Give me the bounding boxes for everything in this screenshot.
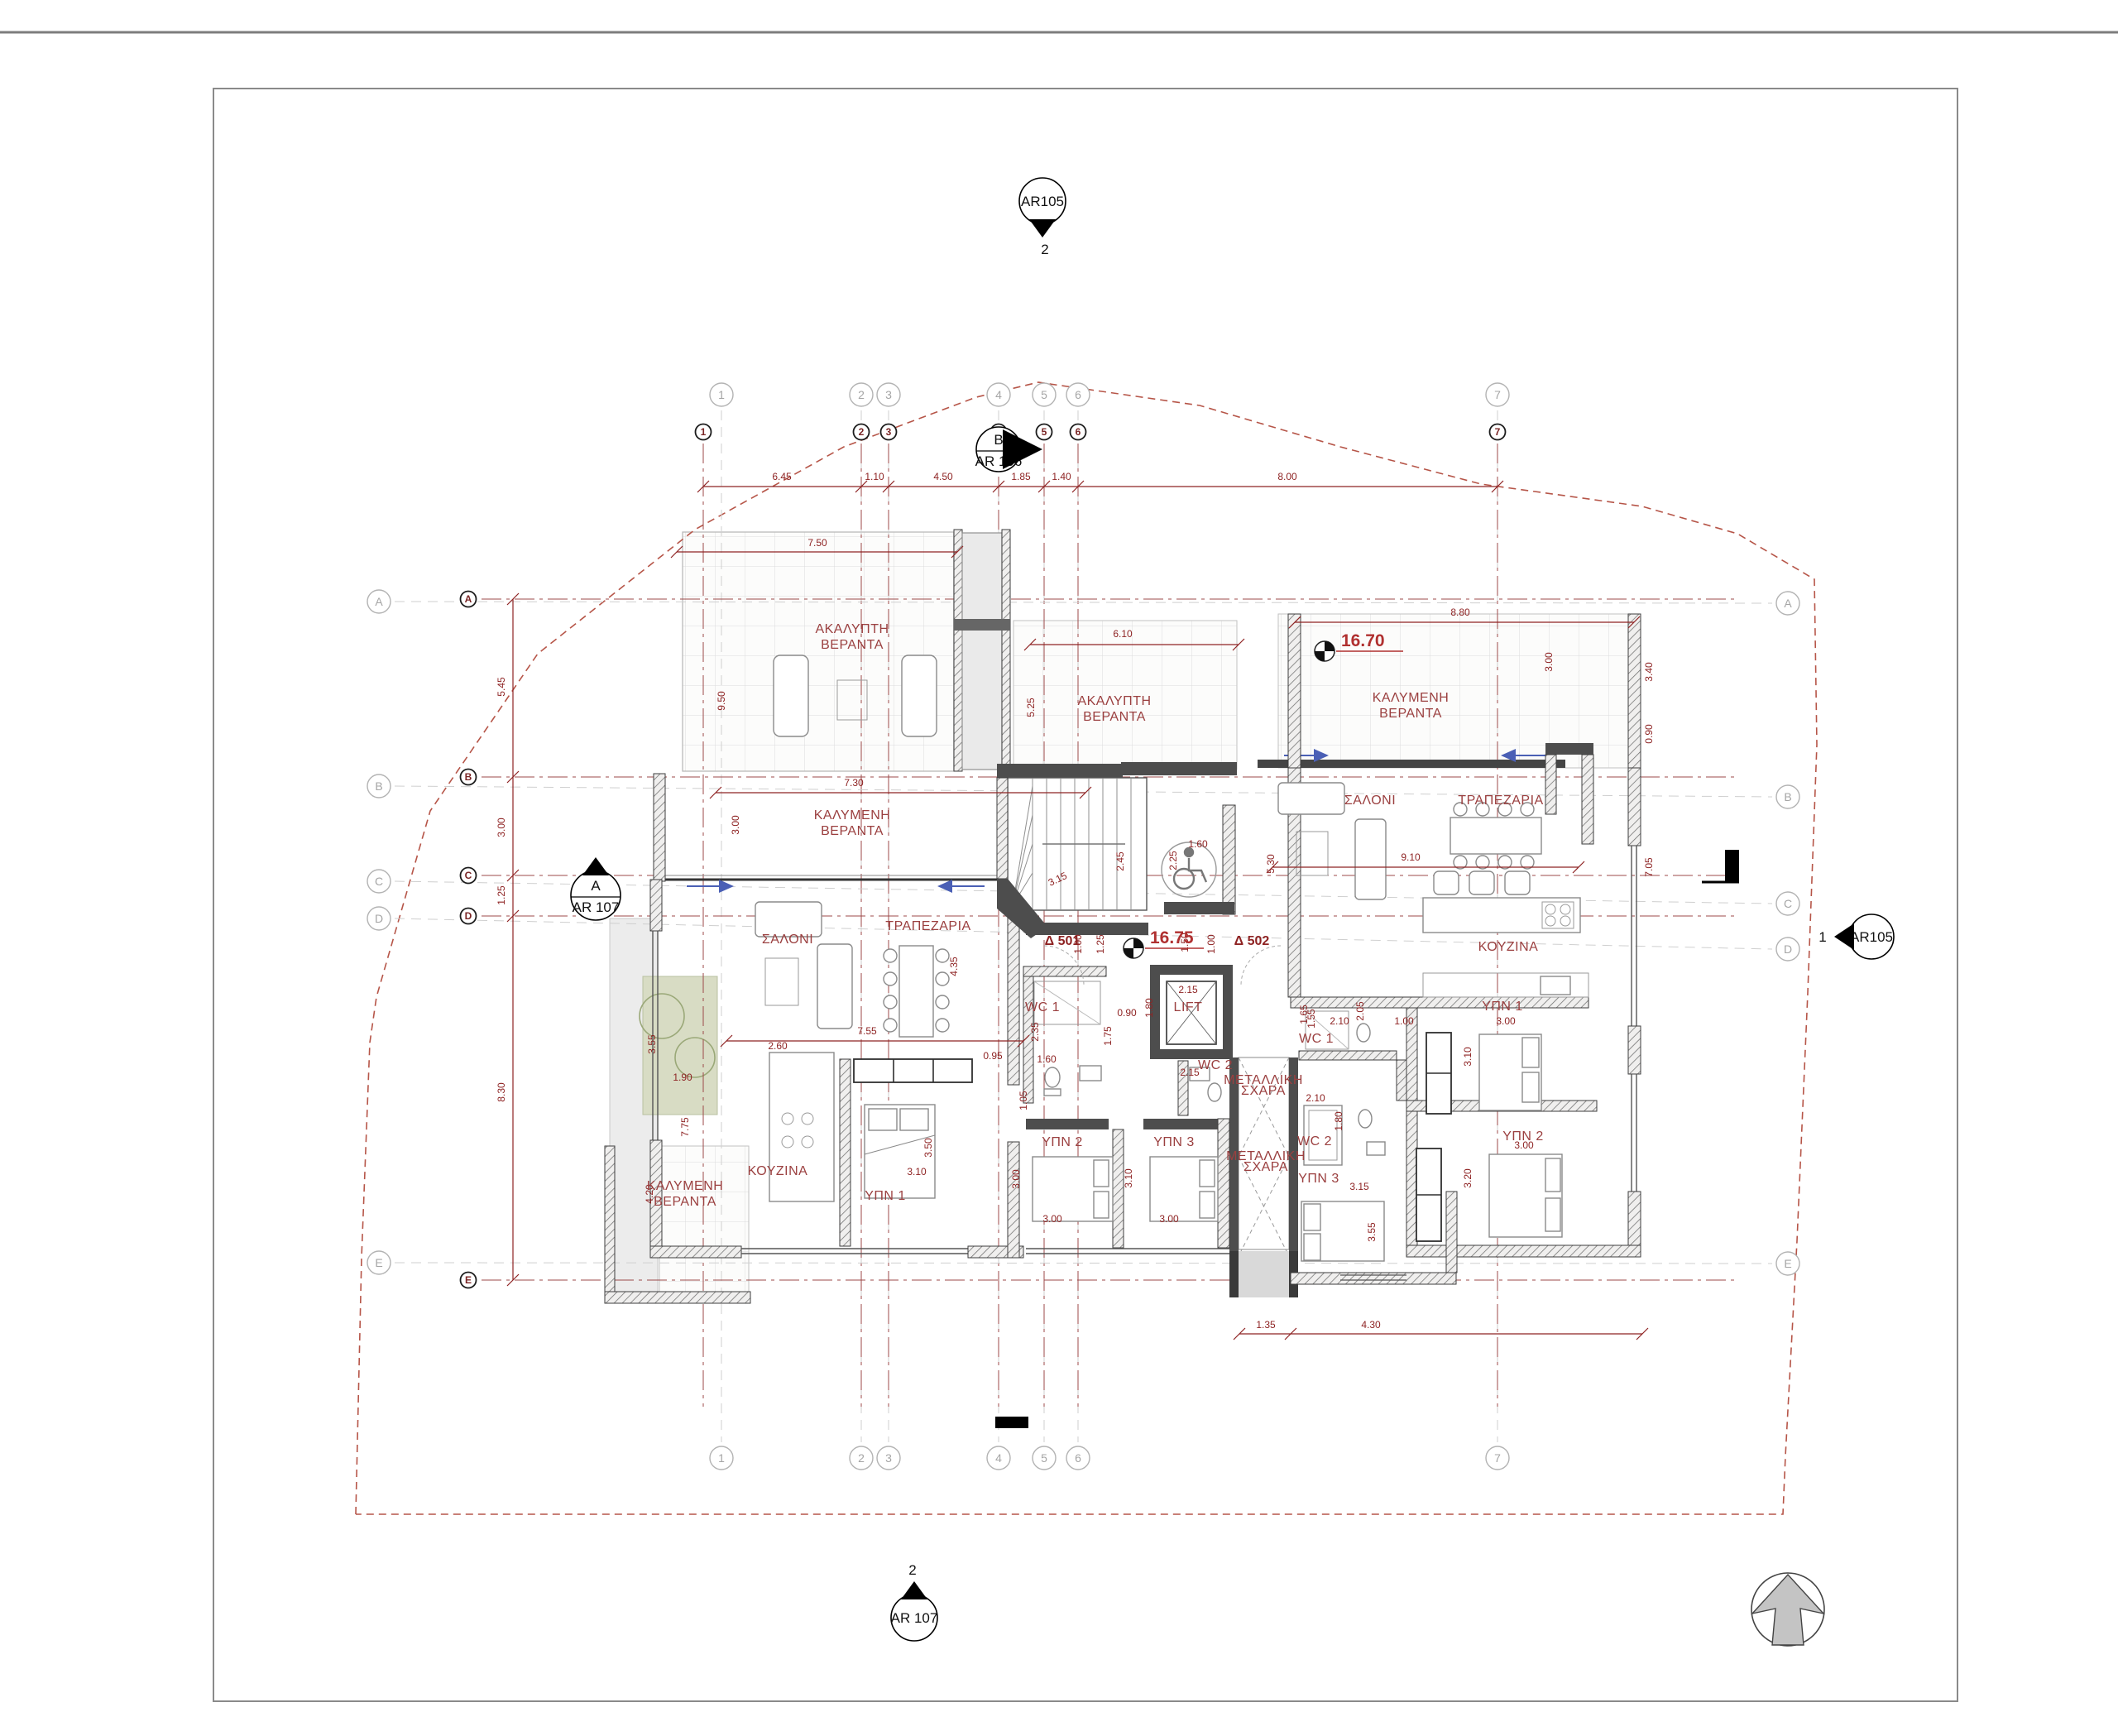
dimension-text: 2.35: [1029, 1022, 1041, 1042]
level-symbol-icon: [1124, 948, 1133, 958]
dimension-text: 1.35: [1256, 1319, 1276, 1331]
dimension-text: 9.10: [1401, 851, 1421, 863]
grid-bubble-label: E: [375, 1256, 382, 1269]
grid-bubble-label: D: [375, 912, 383, 925]
dimension-text: 8.80: [1450, 607, 1470, 618]
room-label: ΥΠΝ 3: [1153, 1135, 1195, 1149]
property-boundary: [356, 382, 1817, 1514]
dimension-text: 4.50: [933, 471, 953, 482]
grid-bubble-label: B: [1784, 790, 1791, 803]
section-b-top-letter: B: [994, 432, 1003, 448]
section-2-top-label: AR105: [1021, 194, 1064, 209]
grid-bubble-label: 7: [1494, 1451, 1501, 1465]
grid-bubble-label: 7: [1495, 426, 1501, 438]
grid-bubble-label: 7: [1494, 388, 1501, 401]
dimension-text: 1.00: [1394, 1015, 1414, 1027]
grid-bubble-label: 5: [1042, 426, 1047, 438]
kitchen-counter: [1423, 898, 1580, 933]
dimension-text: 3.40: [1643, 662, 1655, 682]
grid-bubble-label: B: [465, 771, 472, 783]
rug: [1296, 832, 1328, 875]
section-2-bottom-label: AR 107: [891, 1610, 938, 1626]
grid-bubble-label: 3: [886, 426, 892, 438]
room-label: ΚΟΥΖΙΝΑ: [748, 1164, 808, 1178]
section-cut-bars: [995, 850, 1739, 1428]
room-label: ΣΑΛΟΝΙ: [1344, 794, 1396, 808]
section-a-left-label: AR 107: [573, 899, 620, 915]
grid-bubble-label: 5: [1041, 388, 1047, 401]
dimension-text: 3.55: [646, 1034, 658, 1054]
grid-bubble-label: 6: [1076, 426, 1081, 438]
toilet: [1208, 1083, 1221, 1101]
rug: [765, 958, 798, 1005]
level-symbol-icon: [1133, 938, 1143, 948]
dimension-text: 6.45: [772, 471, 792, 482]
grid-bubble-label: 2: [859, 426, 865, 438]
dimension-text: 3.10: [1462, 1047, 1473, 1067]
dimension-text: 7.05: [1643, 857, 1655, 877]
toilet: [1358, 1110, 1372, 1128]
dimension-text: 3.00: [1159, 1213, 1179, 1225]
dimension-text: 0.90: [1643, 724, 1655, 744]
dimension-text: 5.30: [1265, 854, 1277, 874]
section-1-right-direction-icon: [1834, 923, 1854, 950]
grid-bubble-label: 6: [1075, 388, 1081, 401]
dimension-text: 3.15: [1349, 1181, 1369, 1192]
room-label: ΣΑΛΟΝΙ: [762, 933, 813, 947]
toilet: [1357, 1024, 1370, 1042]
stool: [1434, 871, 1459, 894]
closet: [854, 1059, 972, 1082]
dining-table: [1450, 818, 1541, 854]
room-label: WC 2: [1198, 1058, 1233, 1072]
dimension-text: 2.10: [1306, 1092, 1325, 1104]
dimension-text: 1.40: [1052, 471, 1071, 482]
grid-bubble-label: E: [465, 1274, 472, 1286]
dimension-text: 2.15: [1180, 1067, 1200, 1078]
dimension-text: 3.00: [730, 815, 741, 835]
grid-bubble-label: 3: [885, 388, 892, 401]
grid-bubble-label: 4: [995, 388, 1002, 401]
room-label: WC 1: [1299, 1032, 1334, 1046]
dimension-text: 5.25: [1025, 698, 1037, 717]
dimension-text: 1.60: [1188, 838, 1208, 850]
room-label: LIFT: [1174, 1000, 1203, 1014]
dimension-text: 7.55: [857, 1025, 877, 1037]
dimension-text: 2.45: [1114, 851, 1126, 871]
section-1-right-number: 1: [1819, 929, 1826, 945]
section-2-top-number: 2: [1041, 242, 1048, 257]
room-label: ΥΠΝ 2: [1042, 1135, 1083, 1149]
grid-bubble-label: E: [1784, 1257, 1791, 1270]
room-label: ΤΡΑΠΕΖΑΡΙΑ: [1458, 794, 1543, 808]
dimension-text: 3.00: [1543, 652, 1555, 672]
dimension-text: 3.10: [1123, 1168, 1134, 1188]
stool: [1469, 871, 1494, 894]
sofa: [755, 902, 822, 937]
dimension-text: 0.95: [983, 1050, 1003, 1062]
room-label: WC 2: [1297, 1134, 1332, 1149]
dimension-text: 1.90: [673, 1072, 692, 1083]
dimension-text: 3.00: [496, 818, 507, 837]
room-label: WC 1: [1025, 1000, 1060, 1014]
dimension-text: 1.25: [1095, 934, 1106, 954]
room-label: ΥΠΝ 2: [1502, 1129, 1544, 1144]
dimension-text: 0.90: [1117, 1007, 1137, 1019]
grid-bubble-label: C: [465, 870, 472, 881]
grid-bubble-label: 1: [718, 388, 725, 401]
grid-bubble-label: B: [375, 779, 382, 793]
grid-bubble-label: 2: [858, 1451, 865, 1465]
dining-table: [899, 946, 933, 1037]
dimension-text: 7.50: [807, 537, 827, 549]
room-label: ΥΠΝ 1: [1482, 1000, 1523, 1014]
drawing-sheet: 111222333444555666777AAABBBCCCDDDEEE: [0, 0, 2118, 1736]
grid-bubble-label: C: [375, 875, 383, 888]
dimension-text: 3.20: [1462, 1168, 1473, 1188]
dimension-text: 1.00: [1205, 934, 1217, 954]
dimension-text: 7.75: [679, 1117, 691, 1137]
room-label: ΚΑΛΥΜΕΝΗΒΕΡΑΝΤΑ: [814, 808, 891, 838]
dimension-text: 1.75: [1102, 1026, 1114, 1046]
grid-bubble-label: A: [1784, 597, 1792, 610]
dimension-text: 1.80: [1333, 1111, 1344, 1131]
section-a-left-direction-icon: [582, 857, 609, 875]
sink: [1367, 1142, 1385, 1155]
sun-lounger: [774, 655, 808, 736]
grid-bubble-label: C: [1784, 897, 1792, 910]
dimension-text: 2.60: [768, 1040, 788, 1052]
dimension-text: 4.35: [948, 957, 960, 976]
dimension-text: 3.50: [922, 1138, 934, 1158]
sofa: [1278, 783, 1344, 814]
section-2-top-direction-icon: [1029, 219, 1056, 237]
dimension-text: 5.45: [496, 677, 507, 697]
dimension-text: 1.05: [1018, 1091, 1029, 1110]
sun-lounger: [902, 655, 937, 736]
dimension-text: 1.65: [1298, 1005, 1310, 1024]
section-1-right-label: AR105: [1850, 929, 1893, 945]
dimension-text: 6.10: [1113, 628, 1133, 640]
stool: [1505, 871, 1530, 894]
room-label: ΚΟΥΖΙΝΑ: [1478, 940, 1539, 954]
dimension-text: 7.30: [844, 777, 864, 789]
dimension-text: 3.55: [1366, 1222, 1378, 1242]
section-2-bottom-number: 2: [908, 1562, 916, 1578]
dimension-text: 3.00: [1496, 1015, 1516, 1027]
grid-bubble-label: D: [465, 910, 472, 922]
toilet: [1045, 1067, 1060, 1087]
floor-plan-svg: 111222333444555666777AAABBBCCCDDDEEE: [0, 0, 2118, 1736]
glass-facade: [1258, 760, 1565, 768]
north-arrow-icon: [1751, 1573, 1824, 1646]
sofa: [817, 944, 852, 1029]
unit-label: Δ 502: [1234, 934, 1270, 948]
dimension-text: 4.30: [1361, 1319, 1381, 1331]
section-a-left-letter: A: [591, 878, 601, 894]
dimension-text: 2.10: [1330, 1015, 1349, 1027]
level-value: 16.70: [1341, 631, 1385, 650]
room-label: ΥΠΝ 1: [865, 1189, 906, 1203]
grid-bubble-label: A: [465, 593, 472, 605]
dimension-text: 9.50: [716, 691, 727, 711]
dimension-text: 1.60: [1037, 1053, 1057, 1065]
dimension-text: 8.30: [496, 1082, 507, 1102]
grid-bubble-label: 3: [885, 1451, 892, 1465]
room-label: ΤΡΑΠΕΖΑΡΙΑ: [885, 919, 970, 933]
dimension-text: 1.80: [1143, 998, 1155, 1018]
dimension-text: 2.15: [1178, 984, 1198, 995]
unit-label: Δ 501: [1045, 934, 1081, 948]
sofa: [1355, 819, 1386, 899]
dimension-text: 3.00: [1042, 1213, 1062, 1225]
dimension-text: 1.10: [865, 471, 884, 482]
sink: [1080, 1066, 1101, 1081]
dimension-text: 8.00: [1277, 471, 1297, 482]
dimension-text: 3.00: [1010, 1169, 1022, 1189]
dimension-text: 1.85: [1011, 471, 1031, 482]
level-value: 16.75: [1150, 928, 1194, 947]
grid-bubble-label: 1: [701, 426, 707, 438]
grid-bubble-label: 6: [1075, 1451, 1081, 1465]
dimension-text: 1.25: [496, 885, 507, 905]
grid-bubble-label: 2: [858, 388, 865, 401]
grid-bubble-label: 5: [1041, 1451, 1047, 1465]
grid-bubble-label: D: [1784, 942, 1792, 956]
dimension-text: 2.25: [1167, 851, 1179, 870]
grid-bubble-label: 4: [995, 1451, 1002, 1465]
dimension-text: 2.05: [1354, 1001, 1366, 1021]
room-label: ΥΠΝ 3: [1298, 1172, 1339, 1186]
grid-bubble-label: A: [375, 595, 383, 608]
grid-line-row-E: [395, 1263, 1772, 1264]
sink: [1541, 976, 1570, 995]
section-2-bottom-direction-icon: [901, 1581, 927, 1599]
grid-bubble-label: 1: [718, 1451, 725, 1465]
kitchen-island: [769, 1053, 834, 1201]
dimension-text: 3.10: [907, 1166, 927, 1177]
